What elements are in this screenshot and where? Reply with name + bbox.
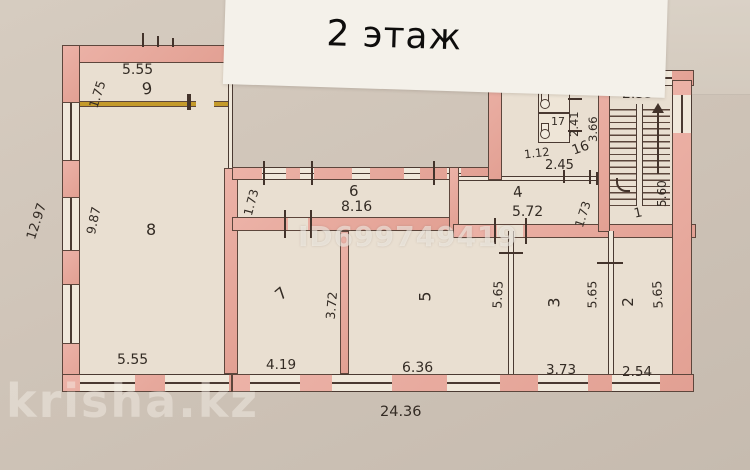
wall-top-left-section [62, 45, 232, 63]
wall-room8-room7 [224, 168, 238, 374]
dim-room3-depth: 5.65 [585, 267, 600, 309]
tick-mark [589, 170, 591, 184]
window-left-1 [62, 103, 80, 160]
room-8-number: 8 [146, 220, 156, 239]
window-bottom-4 [332, 374, 392, 392]
tick-mark [597, 262, 623, 264]
room-2-number: 2 [619, 297, 637, 307]
room-17-number: 17 [551, 115, 565, 128]
dim-overall-width: 24.36 [380, 404, 422, 420]
dim-room4-width: 5.72 [512, 204, 543, 220]
dim-room6-width: 8.16 [341, 199, 372, 215]
dim-room2-width: 2.54 [622, 364, 652, 380]
dim-room9-width: 5.55 [122, 62, 153, 78]
door-mark-room9 [187, 94, 191, 110]
floorplan-photo: 5.55 9 1.75 8 9.87 12.97 5.55 6 8.16 1.7… [0, 0, 750, 470]
dim-room3-width: 3.73 [546, 362, 576, 378]
window-left-2 [62, 198, 80, 250]
room-5-number: 5 [416, 291, 435, 301]
toilet-icon [540, 99, 550, 109]
door-mark [525, 218, 527, 244]
wall-left [62, 160, 80, 198]
dim-room7-width: 4.19 [266, 357, 296, 373]
tick-mark [172, 38, 174, 47]
window-bottom-5 [447, 374, 500, 392]
door-mark [284, 210, 286, 238]
window-room6-1 [262, 167, 286, 180]
room-interior-left [80, 63, 228, 374]
dim-room5-width: 6.36 [402, 360, 433, 376]
wall-left [62, 250, 80, 285]
wall-room3-room2 [608, 231, 614, 374]
dim-stairs-depth: 5.60 [655, 165, 669, 207]
page-title: 2 этаж [326, 13, 463, 58]
title-band: 2 этаж [223, 0, 668, 98]
window-room6-4 [404, 167, 420, 180]
watermark-site-logo: krisha.kz [6, 374, 259, 428]
dim-room16-width: 2.45 [545, 158, 574, 173]
wall-left [62, 45, 80, 103]
wall-top-room4 [459, 176, 598, 181]
tick-mark [311, 161, 313, 185]
door-opening-room9 [196, 100, 214, 108]
toilet-icon [540, 129, 550, 139]
tick-mark [157, 36, 159, 47]
stair-arrow-head-icon [652, 103, 664, 113]
stair-stringer [636, 104, 643, 206]
window-room6-3 [352, 167, 370, 180]
room-4-number: 4 [512, 183, 523, 202]
dim-room5-depth: 5.65 [489, 266, 506, 309]
window-right [672, 95, 692, 133]
dim-wc-depth: 2.41 [567, 95, 581, 137]
dim-left-outer-depth: 12.97 [24, 184, 56, 242]
room-6-number: 6 [349, 182, 359, 200]
window-left-3 [62, 285, 80, 343]
room-3-number: 3 [545, 297, 564, 307]
dim-room2-depth: 5.65 [648, 266, 665, 309]
tick-mark [433, 161, 435, 185]
tick-mark [142, 33, 144, 47]
dim-room8-width: 5.55 [117, 352, 148, 368]
watermark-id: ID699749419 [298, 220, 518, 253]
dim-room16-depth: 3.66 [586, 100, 600, 142]
